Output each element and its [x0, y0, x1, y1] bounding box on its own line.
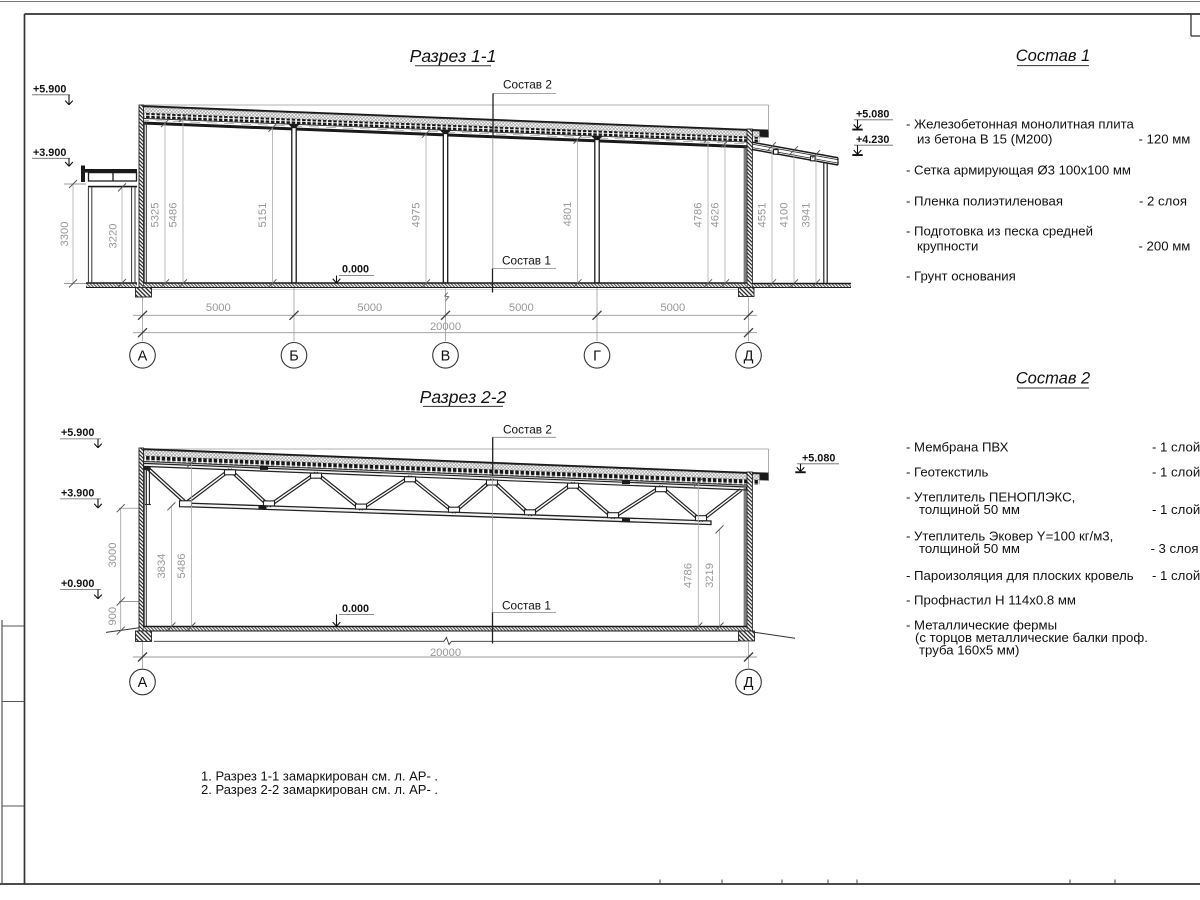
svg-text:20000: 20000	[430, 647, 461, 659]
svg-text:А: А	[138, 675, 148, 691]
svg-text:3000: 3000	[107, 543, 119, 568]
svg-text:Состав 2: Состав 2	[503, 423, 552, 437]
svg-text:Разрез 2-2: Разрез 2-2	[420, 387, 507, 407]
svg-text:- 200 мм: - 200 мм	[1139, 239, 1191, 254]
svg-text:5000: 5000	[357, 302, 382, 314]
svg-text:5000: 5000	[509, 302, 534, 314]
svg-text:5486: 5486	[168, 203, 180, 228]
svg-text:+5.900: +5.900	[61, 427, 94, 439]
svg-text:крупности: крупности	[917, 239, 978, 254]
svg-text:- 120 мм: - 120 мм	[1139, 132, 1191, 147]
svg-text:900: 900	[107, 607, 119, 626]
svg-text:5325: 5325	[150, 203, 162, 228]
svg-text:толщиной 50 мм: толщиной 50 мм	[919, 502, 1020, 517]
svg-text:5151: 5151	[257, 203, 269, 228]
svg-text:Д: Д	[744, 349, 754, 365]
svg-text:+5.080: +5.080	[856, 109, 889, 121]
svg-text:+3.900: +3.900	[33, 147, 66, 159]
svg-text:+0.900: +0.900	[61, 578, 94, 590]
svg-text:0.000: 0.000	[342, 264, 369, 276]
svg-text:А: А	[138, 349, 148, 365]
svg-text:+5.900: +5.900	[33, 84, 66, 96]
svg-text:- Геотекстиль: - Геотекстиль	[906, 465, 989, 480]
svg-text:- 2 слоя: - 2 слоя	[1139, 194, 1187, 209]
svg-text:В: В	[441, 349, 451, 365]
svg-text:5000: 5000	[660, 302, 685, 314]
svg-text:4100: 4100	[779, 203, 791, 228]
svg-text:3219: 3219	[704, 563, 716, 588]
svg-text:- 3 слоя: - 3 слоя	[1151, 541, 1199, 556]
svg-text:Состав 1: Состав 1	[1016, 47, 1090, 65]
svg-text:- Профнастил Н 114х0.8 мм: - Профнастил Н 114х0.8 мм	[906, 593, 1076, 608]
svg-text:- Пленка полиэтиленовая: - Пленка полиэтиленовая	[906, 194, 1063, 209]
svg-text:- Подготовка из песка средней: - Подготовка из песка средней	[906, 224, 1093, 239]
svg-text:Состав 1: Состав 1	[502, 254, 551, 268]
svg-text:+3.900: +3.900	[61, 487, 94, 499]
svg-text:- Мембрана ПВХ: - Мембрана ПВХ	[906, 440, 1009, 455]
svg-text:3220: 3220	[108, 224, 120, 249]
svg-text:+4.230: +4.230	[856, 134, 889, 146]
svg-text:2. Разрез 2-2 замаркирован см.: 2. Разрез 2-2 замаркирован см. л. АР- .	[201, 782, 438, 797]
svg-text:3834: 3834	[156, 554, 168, 579]
svg-text:толщиной 50 мм: толщиной 50 мм	[919, 541, 1020, 556]
svg-text:3300: 3300	[59, 222, 71, 247]
svg-text:- 1 слой: - 1 слой	[1152, 440, 1200, 455]
svg-text:4786: 4786	[683, 563, 695, 588]
svg-text:4551: 4551	[757, 203, 769, 228]
svg-text:4626: 4626	[710, 203, 722, 228]
svg-text:4975: 4975	[411, 203, 423, 228]
svg-text:5486: 5486	[176, 554, 188, 579]
svg-text:- Пароизоляция для плоских кро: - Пароизоляция для плоских кровель	[906, 568, 1134, 583]
svg-text:- 1 слой: - 1 слой	[1152, 502, 1200, 517]
svg-text:4801: 4801	[562, 202, 574, 227]
svg-text:- 1 слой: - 1 слой	[1152, 568, 1200, 583]
svg-text:из бетона В 15 (М200): из бетона В 15 (М200)	[917, 132, 1052, 147]
svg-text:Состав 1: Состав 1	[502, 599, 551, 613]
svg-text:3941: 3941	[801, 203, 813, 228]
svg-text:4786: 4786	[693, 203, 705, 228]
svg-text:Г: Г	[593, 349, 601, 365]
svg-text:Разрез 1-1: Разрез 1-1	[410, 46, 497, 66]
svg-text:труба 160х5 мм): труба 160х5 мм)	[919, 643, 1019, 658]
svg-text:- 1 слой: - 1 слой	[1152, 465, 1200, 480]
svg-text:+5.080: +5.080	[802, 453, 835, 465]
svg-text:Состав 2: Состав 2	[1016, 370, 1090, 388]
svg-text:5000: 5000	[206, 302, 231, 314]
svg-text:Д: Д	[744, 675, 754, 691]
svg-text:- Железобетонная монолитная п: - Железобетонная монолитная плита	[906, 117, 1135, 132]
svg-text:20000: 20000	[430, 321, 461, 333]
svg-text:0.000: 0.000	[342, 603, 369, 615]
svg-text:Состав 2: Состав 2	[503, 78, 552, 92]
svg-text:- Сетка армирующая Ø3 100х100: - Сетка армирующая Ø3 100х100 мм	[906, 163, 1131, 178]
svg-text:Б: Б	[289, 349, 299, 365]
svg-text:- Грунт основания: - Грунт основания	[906, 269, 1016, 284]
